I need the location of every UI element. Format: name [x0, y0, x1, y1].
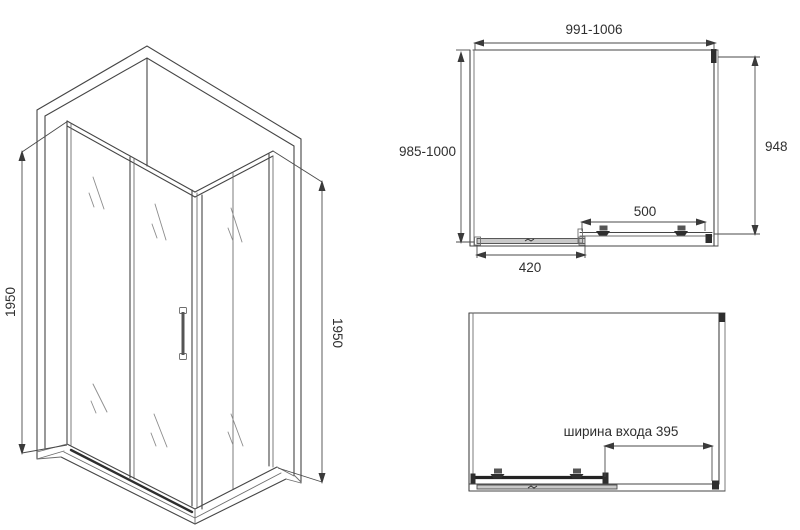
dimension-side-panel: 948: [714, 55, 788, 236]
base-rails: [37, 444, 301, 524]
dim-label-door: 500: [634, 204, 657, 219]
roller-icon: [596, 226, 610, 236]
plan-fixed-panel: [475, 237, 586, 245]
technical-drawing-canvas: 1950 1950: [0, 0, 800, 530]
plan-view-closed: 991-1006 985-1000 948 500: [399, 22, 788, 275]
dimension-width: 991-1006: [473, 22, 717, 50]
dimension-entry-width: ширина входа 395: [564, 424, 714, 481]
wall-profile-top-right: [719, 313, 725, 322]
iso-view: 1950 1950: [3, 46, 345, 524]
roller-icon: [674, 226, 688, 236]
dim-label-depth: 985-1000: [399, 144, 456, 159]
wall-panels: [37, 46, 301, 483]
wall-profile-bottom-right: [712, 481, 719, 490]
door-wall-profile: [706, 234, 713, 243]
dim-label-height-left: 1950: [3, 287, 18, 317]
open-outline: [469, 313, 725, 491]
dimension-depth: 985-1000: [399, 50, 474, 244]
dim-label-fixed-panel: 420: [519, 260, 542, 275]
dim-label-height-right: 1950: [330, 318, 345, 348]
dimension-fixed-panel: 420: [475, 245, 587, 275]
door-handle: [180, 308, 187, 360]
door-left-cap: [471, 474, 476, 484]
dim-label-side-panel: 948: [765, 139, 788, 154]
plan-view-open: ширина входа 395: [469, 313, 725, 491]
wall-profile-top-right: [711, 49, 717, 63]
glass-reflection-marks: [89, 177, 243, 447]
dimension-height-right: 1950: [273, 151, 345, 484]
plan-outline: [470, 49, 718, 246]
open-fixed-panel: [477, 485, 617, 489]
shower-enclosure-drawing: 1950 1950: [0, 0, 800, 530]
dim-label-width: 991-1006: [565, 22, 622, 37]
bottom-door-track: [71, 450, 192, 512]
plan-sliding-door: [578, 226, 712, 244]
open-sliding-door: [471, 469, 609, 484]
roller-icon: [491, 469, 505, 479]
dim-label-entry-width: ширина входа 395: [564, 424, 679, 439]
dimension-door: 500: [580, 204, 707, 231]
door-right-cap: [603, 473, 609, 484]
roller-icon: [570, 469, 584, 479]
enclosure-frame: [67, 121, 273, 509]
dimension-height-left: 1950: [3, 121, 68, 455]
